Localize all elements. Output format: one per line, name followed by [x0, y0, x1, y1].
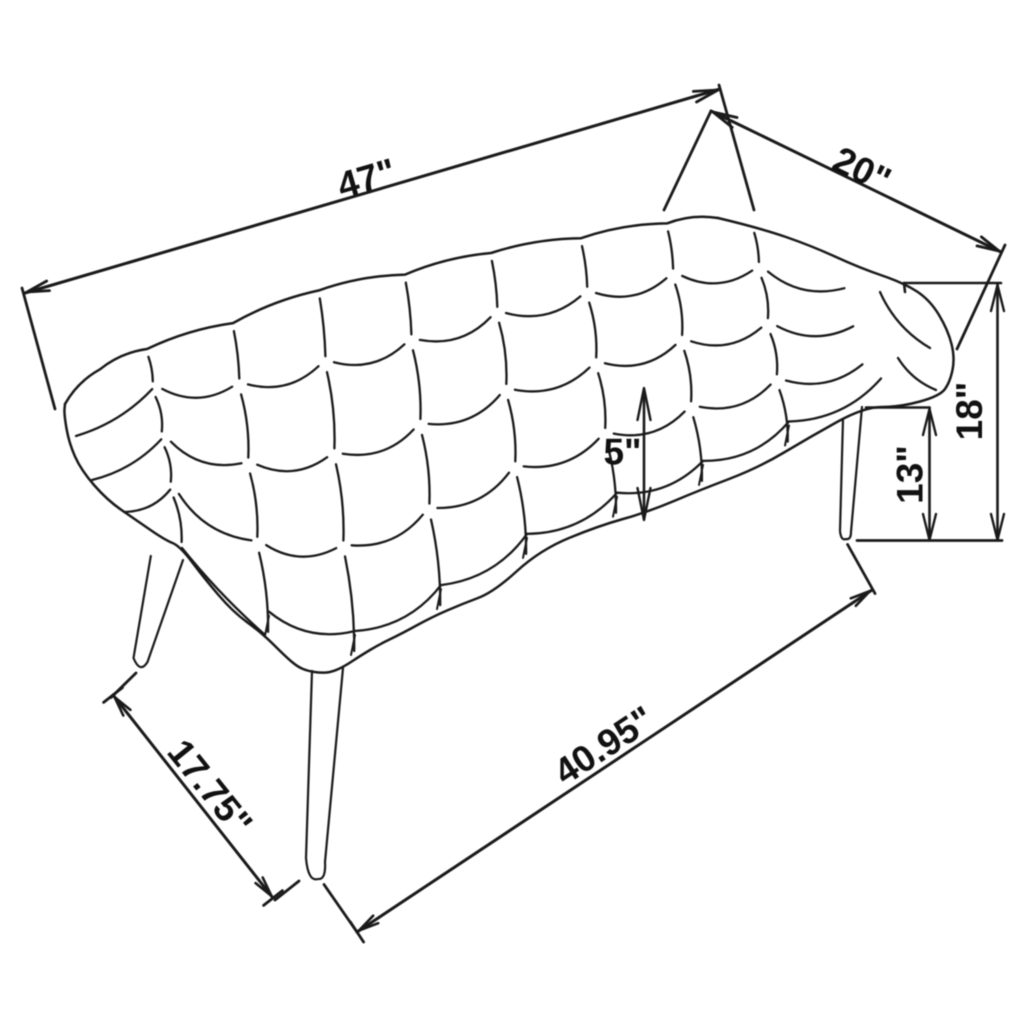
svg-text:18": 18" [949, 382, 990, 441]
svg-text:13": 13" [890, 445, 931, 504]
svg-text:5": 5" [603, 432, 641, 473]
